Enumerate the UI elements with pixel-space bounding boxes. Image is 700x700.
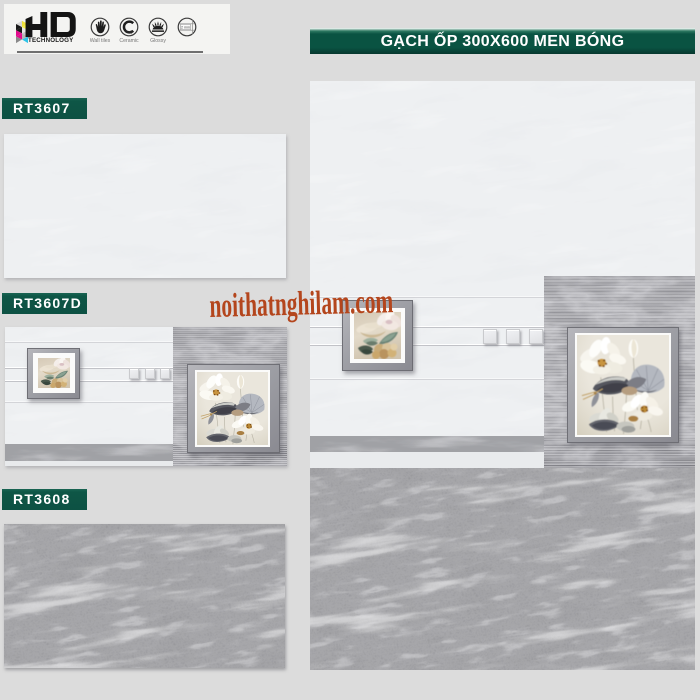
svg-text:2 mm: 2 mm <box>181 25 190 29</box>
svg-text:Ceramic: Ceramic <box>119 38 139 44</box>
svg-text:Wall tiles: Wall tiles <box>90 38 111 44</box>
svg-text:body: body <box>126 30 133 34</box>
svg-text:Glossy: Glossy <box>150 38 166 44</box>
